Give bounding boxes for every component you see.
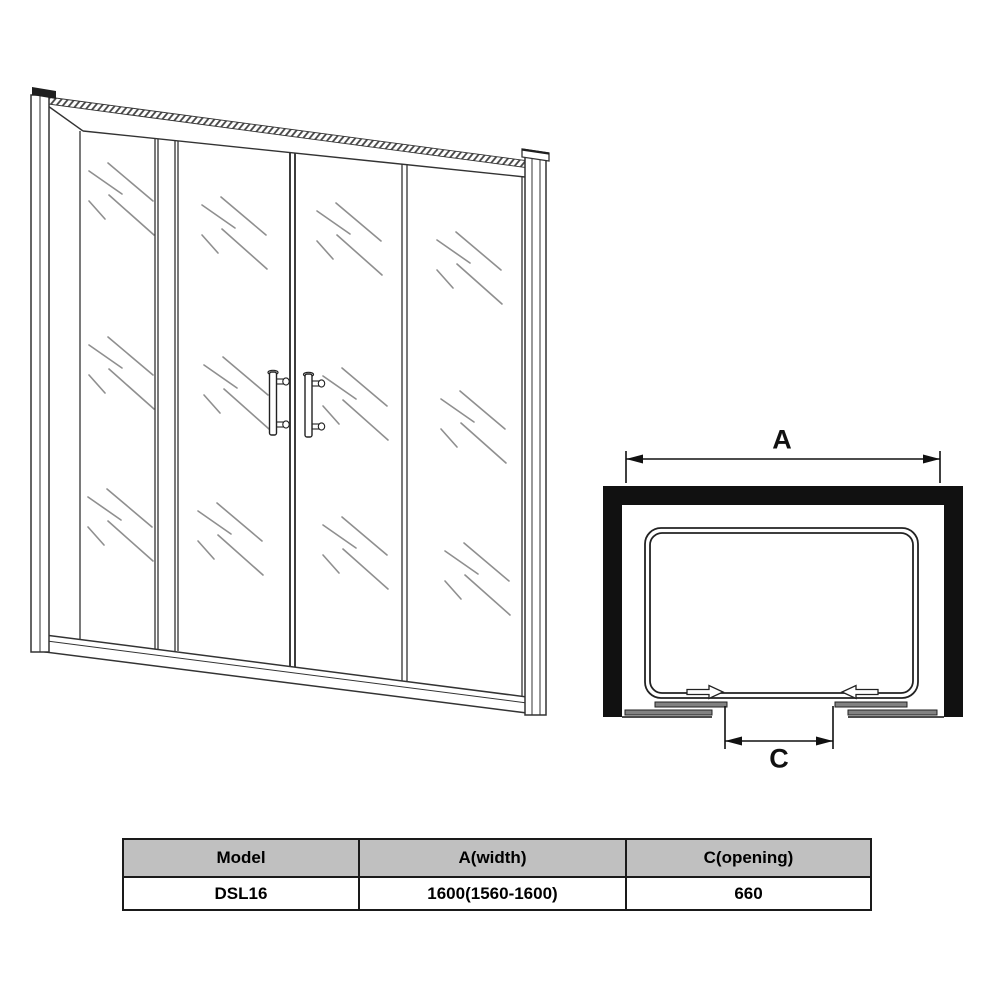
enclosure-walls (603, 486, 963, 717)
product-spec-page: A C Model A(width) C(opening) DSL16 1600… (0, 0, 1001, 1001)
sliding-panels (622, 702, 944, 717)
door-track (645, 528, 918, 698)
table-row: DSL16 1600(1560-1600) 660 (123, 877, 871, 910)
top-rail (48, 97, 529, 177)
dimension-a (626, 451, 940, 483)
spec-table: Model A(width) C(opening) DSL16 1600(156… (122, 838, 872, 911)
spec-header-width: A(width) (359, 839, 626, 877)
spec-value-width: 1600(1560-1600) (359, 877, 626, 910)
shower-door-illustration (0, 0, 580, 760)
top-view-diagram: A C (590, 415, 980, 785)
top-view-plan-svg (590, 415, 980, 785)
spec-value-opening: 660 (626, 877, 871, 910)
right-wall-profile (522, 149, 549, 715)
arrow-left-icon (842, 686, 878, 699)
panel-dividers (80, 131, 522, 697)
left-wall-profile (31, 87, 56, 652)
glass-shine-marks (88, 163, 510, 615)
spec-header-model: Model (123, 839, 359, 877)
door-handle-left (268, 370, 289, 435)
spec-header-row: Model A(width) C(opening) (123, 839, 871, 877)
slide-direction-arrows (687, 686, 878, 699)
spec-header-opening: C(opening) (626, 839, 871, 877)
dimension-c-label: C (769, 746, 789, 773)
bottom-rail (45, 635, 527, 713)
door-handle-right (304, 372, 325, 437)
shower-door-drawing-svg (0, 0, 580, 760)
dimension-a-label: A (772, 427, 792, 454)
arrow-right-icon (687, 686, 723, 699)
spec-value-model: DSL16 (123, 877, 359, 910)
